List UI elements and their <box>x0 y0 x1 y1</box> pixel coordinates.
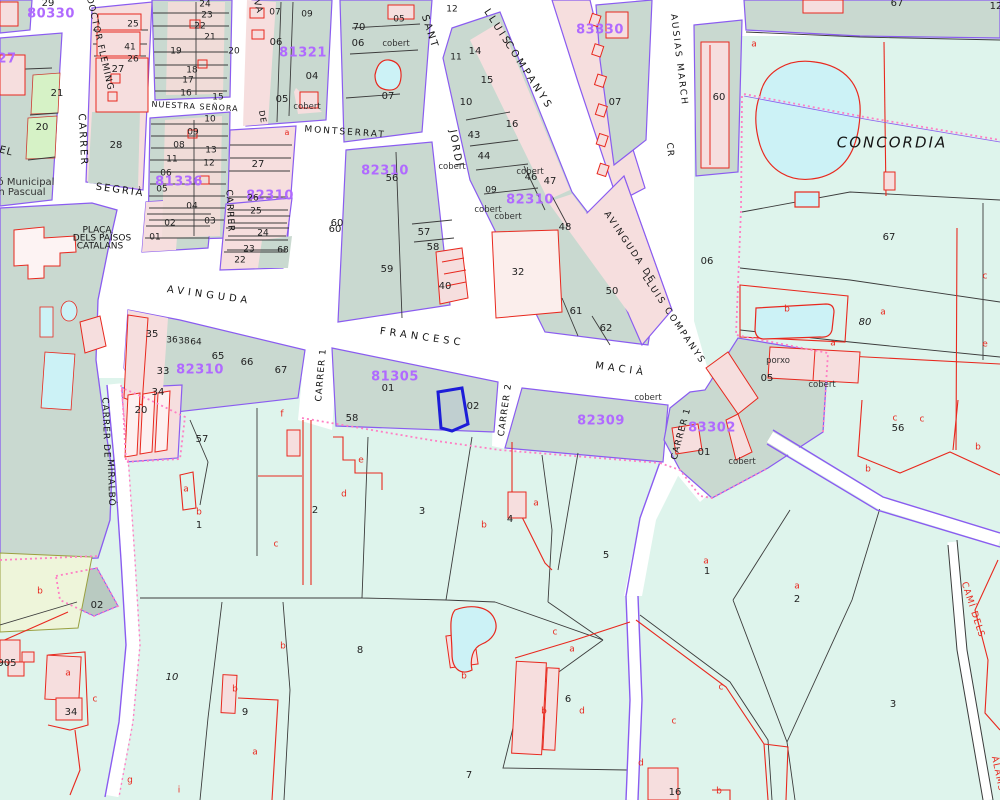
cadastral-map[interactable]: 8033027813218133682310823108231082310813… <box>0 0 1000 800</box>
park-block <box>0 203 117 562</box>
selected-parcel[interactable] <box>438 388 468 431</box>
map-canvas <box>0 0 1000 800</box>
